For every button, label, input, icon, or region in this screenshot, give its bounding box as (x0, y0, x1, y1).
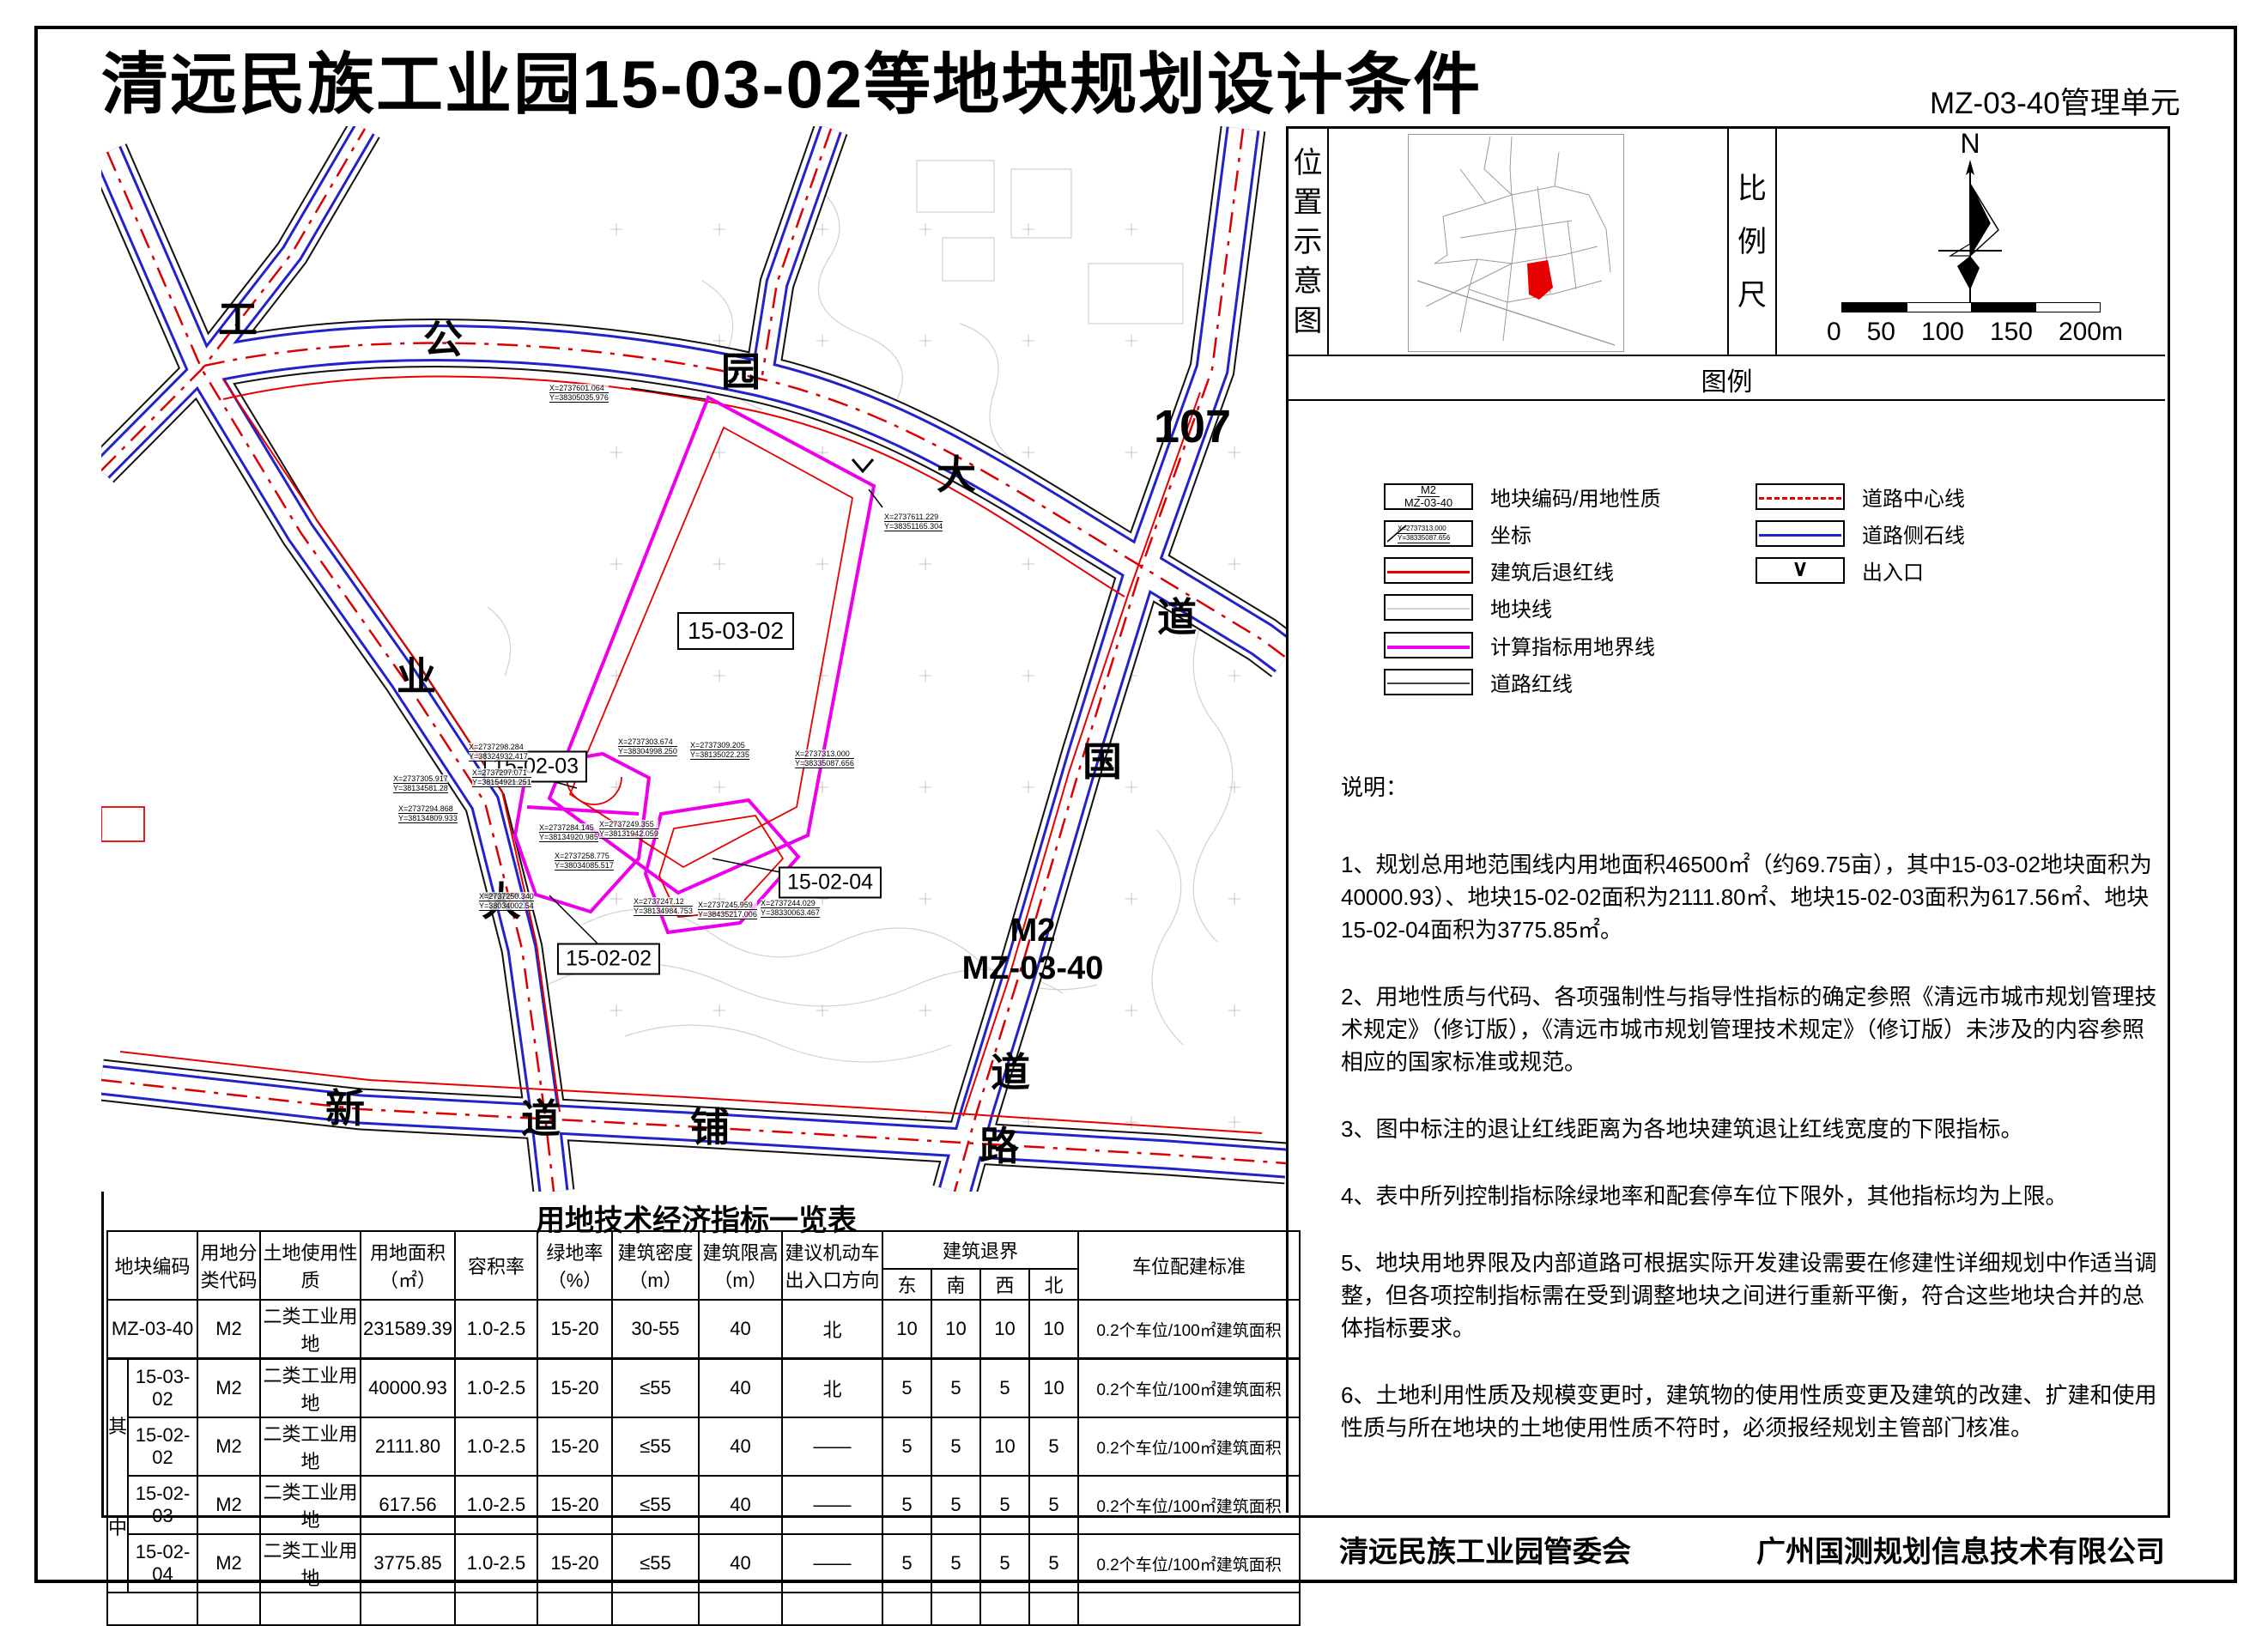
coordinate-label: X=2737244.029Y=38330063.467 (761, 899, 820, 918)
coordinate-label: X=2737249.355Y=38131942.059 (599, 820, 658, 839)
note-1: 1、规划总用地范围线内用地面积46500㎡（约69.75亩），其中15-03-0… (1341, 848, 2158, 946)
road-name-char: 国 (1082, 731, 1122, 787)
road-name-char: 路 (979, 1115, 1019, 1172)
note-3: 3、图中标注的退让红线距离为各地块建筑退让红线宽度的下限指标。 (1341, 1113, 2158, 1145)
footer-agency: 清远民族工业园管委会 (1339, 1528, 1631, 1570)
legend-item-indicator-boundary: 计算指标用地界线 (1384, 630, 1655, 660)
subcol-east: 东 (882, 1269, 931, 1300)
col-header: 车位配建标准 (1078, 1231, 1300, 1300)
location-minimap (1408, 134, 1624, 352)
plan-map: M2MZ-03-40 工业大道公园大道107国道新铺路15-03-0215-02… (101, 126, 1286, 1192)
location-sketch-label: 位置 示意 图 (1289, 129, 1329, 355)
road-name-char: 园 (721, 341, 761, 397)
footer-company: 广州国测规划信息技术有限公司 (1756, 1528, 2165, 1570)
coordinate-label: X=2737305.917Y=38134581.28 (393, 774, 448, 793)
footer: 清远民族工业园管委会 广州国测规划信息技术有限公司 (1339, 1528, 2165, 1570)
coordinate-label: X=2737309.205Y=38135022.235 (690, 741, 749, 760)
coordinate-label: X=2737611.229Y=38351165.304 (884, 513, 943, 531)
road-name-char: 工 (218, 288, 258, 345)
group-label-qizhong: 其中 (107, 1359, 128, 1593)
table-row: 15-02-03 M2 二类工业用地 617.56 1.0-2.5 15-20 … (107, 1476, 1300, 1534)
note-4: 4、表中所列控制指标除绿地率和配套停车位下限外，其他指标均为上限。 (1341, 1180, 2158, 1212)
col-header: 建筑限高（m） (699, 1231, 782, 1300)
indicator-table: 地块编码 用地分类代码 土地使用性质 用地面积（㎡） 容积率 绿地率（%） 建筑… (106, 1230, 1301, 1626)
setback-line-swatch-icon (1384, 557, 1473, 584)
legend-item-setback-line: 建筑后退红线 (1384, 555, 1614, 585)
coordinate-label: X=2737294.868Y=38134809.933 (398, 804, 458, 823)
road-name-char: 铺 (690, 1096, 730, 1153)
col-header: 建筑密度（m） (612, 1231, 699, 1300)
table-row: 其中 15-03-02 M2 二类工业用地 40000.93 1.0-2.5 1… (107, 1359, 1300, 1418)
scale-bar (1841, 302, 2101, 312)
legend-title: 图例 (1289, 361, 2165, 398)
coordinate-label: X=2737297.071Y=38154921.251 (472, 768, 531, 787)
legend-item-plot-line: 地块线 (1384, 592, 1552, 622)
coordinate-label: X=2737303.674Y=38304998.250 (618, 737, 677, 756)
plot-code-swatch-icon: M2MZ-03-40 (1384, 483, 1473, 510)
coordinate-label: X=2737601.064Y=38305035.976 (549, 384, 609, 403)
coordinate-label: X=2737284.145Y=38134920.985 (539, 823, 598, 842)
col-header: 绿地率（%） (537, 1231, 612, 1300)
subcol-west: 西 (980, 1269, 1029, 1300)
svg-text:N: N (1960, 130, 1980, 159)
legend-item-coordinate: X=2737313.000Y=38335087.656 坐标 (1384, 519, 1531, 549)
scale-bar-label: 比例 尺 (1727, 129, 1777, 355)
plot-label-box: 15-03-02 (677, 612, 794, 650)
legend-item-curb-line: 道路侧石线 (1756, 519, 1965, 549)
coordinate-label: X=2737250.340Y=38034002.54 (479, 892, 534, 911)
table-row: MZ-03-40 M2 二类工业用地 231589.39 1.0-2.5 15-… (107, 1300, 1300, 1359)
col-header: 地块编码 (107, 1231, 197, 1300)
road-name-char: 新 (325, 1077, 365, 1134)
management-unit-label: MZ-03-40管理单元 (1930, 79, 2180, 123)
legend-item-road-centerline: 道路中心线 (1756, 482, 1965, 512)
coordinate-label: X=2737247.12Y=38134984.753 (634, 897, 693, 916)
page-title: 清远民族工业园15-03-02等地块规划设计条件 (101, 31, 1482, 127)
indicator-boundary-swatch-icon (1384, 632, 1473, 658)
coordinate-swatch-icon: X=2737313.000Y=38335087.656 (1384, 520, 1473, 547)
road-name-char: 道 (991, 1041, 1030, 1098)
notes-block: 说明： 1、规划总用地范围线内用地面积46500㎡（约69.75亩），其中15-… (1341, 771, 2158, 1478)
road-name-char: 大 (937, 444, 976, 501)
legend-item-entrance: ∨ 出入口 (1756, 555, 1924, 585)
entrance-swatch-icon: ∨ (1756, 557, 1845, 584)
road-name-char: 道 (521, 1088, 561, 1144)
subcol-south: 南 (931, 1269, 980, 1300)
scale-bar-ticks: 050 100150 200m (1827, 318, 2123, 347)
north-arrow: N (1897, 130, 2043, 311)
map-label-layer: M2MZ-03-40 工业大道公园大道107国道新铺路15-03-0215-02… (101, 126, 1286, 1192)
notes-heading: 说明： (1341, 771, 2158, 804)
coordinate-label: X=2737258.775Y=38034085.517 (555, 852, 614, 871)
legend-title-divider (1289, 399, 2165, 401)
road-name-char: 107 (1154, 400, 1231, 453)
road-name-char: 道 (1157, 586, 1197, 643)
table-row: 15-02-02 M2 二类工业用地 2111.80 1.0-2.5 15-20… (107, 1417, 1300, 1476)
legend-item-plot-code: M2MZ-03-40 地块编码/用地性质 (1384, 482, 1661, 512)
note-6: 6、土地利用性质及规模变更时，建筑物的使用性质变更及建筑的改建、扩建和使用性质与… (1341, 1379, 2158, 1444)
col-header: 用地面积（㎡） (361, 1231, 455, 1300)
road-name-char: 公 (423, 308, 463, 365)
col-header-setback: 建筑退界 (882, 1231, 1078, 1269)
plot-label-box: 15-02-02 (557, 943, 660, 975)
note-2: 2、用地性质与代码、各项强制性与指导性指标的确定参照《清远市城市规划管理技术规定… (1341, 980, 2158, 1078)
curb-line-swatch-icon (1756, 520, 1845, 547)
minimap-highlight-plot (1527, 260, 1553, 300)
plot-label-box: 15-02-04 (779, 867, 882, 899)
m2-plot-label: M2MZ-03-40 (962, 912, 1104, 987)
plot-line-swatch-icon (1384, 594, 1473, 621)
subcol-north: 北 (1029, 1269, 1078, 1300)
panel-row-divider (1289, 355, 2165, 356)
note-5: 5、地块用地界限及内部道路可根据实际开发建设需要在修建性详细规划中作适当调整，但… (1341, 1247, 2158, 1344)
col-header: 土地使用性质 (260, 1231, 361, 1300)
coordinate-label: X=2737298.284Y=38324932.417 (469, 743, 528, 761)
coordinate-label: X=2737313.000Y=38335087.656 (795, 749, 854, 768)
road-redline-swatch-icon (1384, 669, 1473, 695)
table-row-empty (107, 1593, 1300, 1625)
coordinate-label: X=2737245.959Y=38435217.006 (698, 901, 757, 919)
col-header: 容积率 (455, 1231, 537, 1300)
col-header: 建议机动车出入口方向 (782, 1231, 882, 1300)
table-row: 15-02-04 M2 二类工业用地 3775.85 1.0-2.5 15-20… (107, 1534, 1300, 1593)
col-header: 用地分类代码 (197, 1231, 260, 1300)
legend-item-road-redline: 道路红线 (1384, 667, 1573, 697)
road-name-char: 业 (397, 646, 436, 702)
road-centerline-swatch-icon (1756, 483, 1845, 510)
